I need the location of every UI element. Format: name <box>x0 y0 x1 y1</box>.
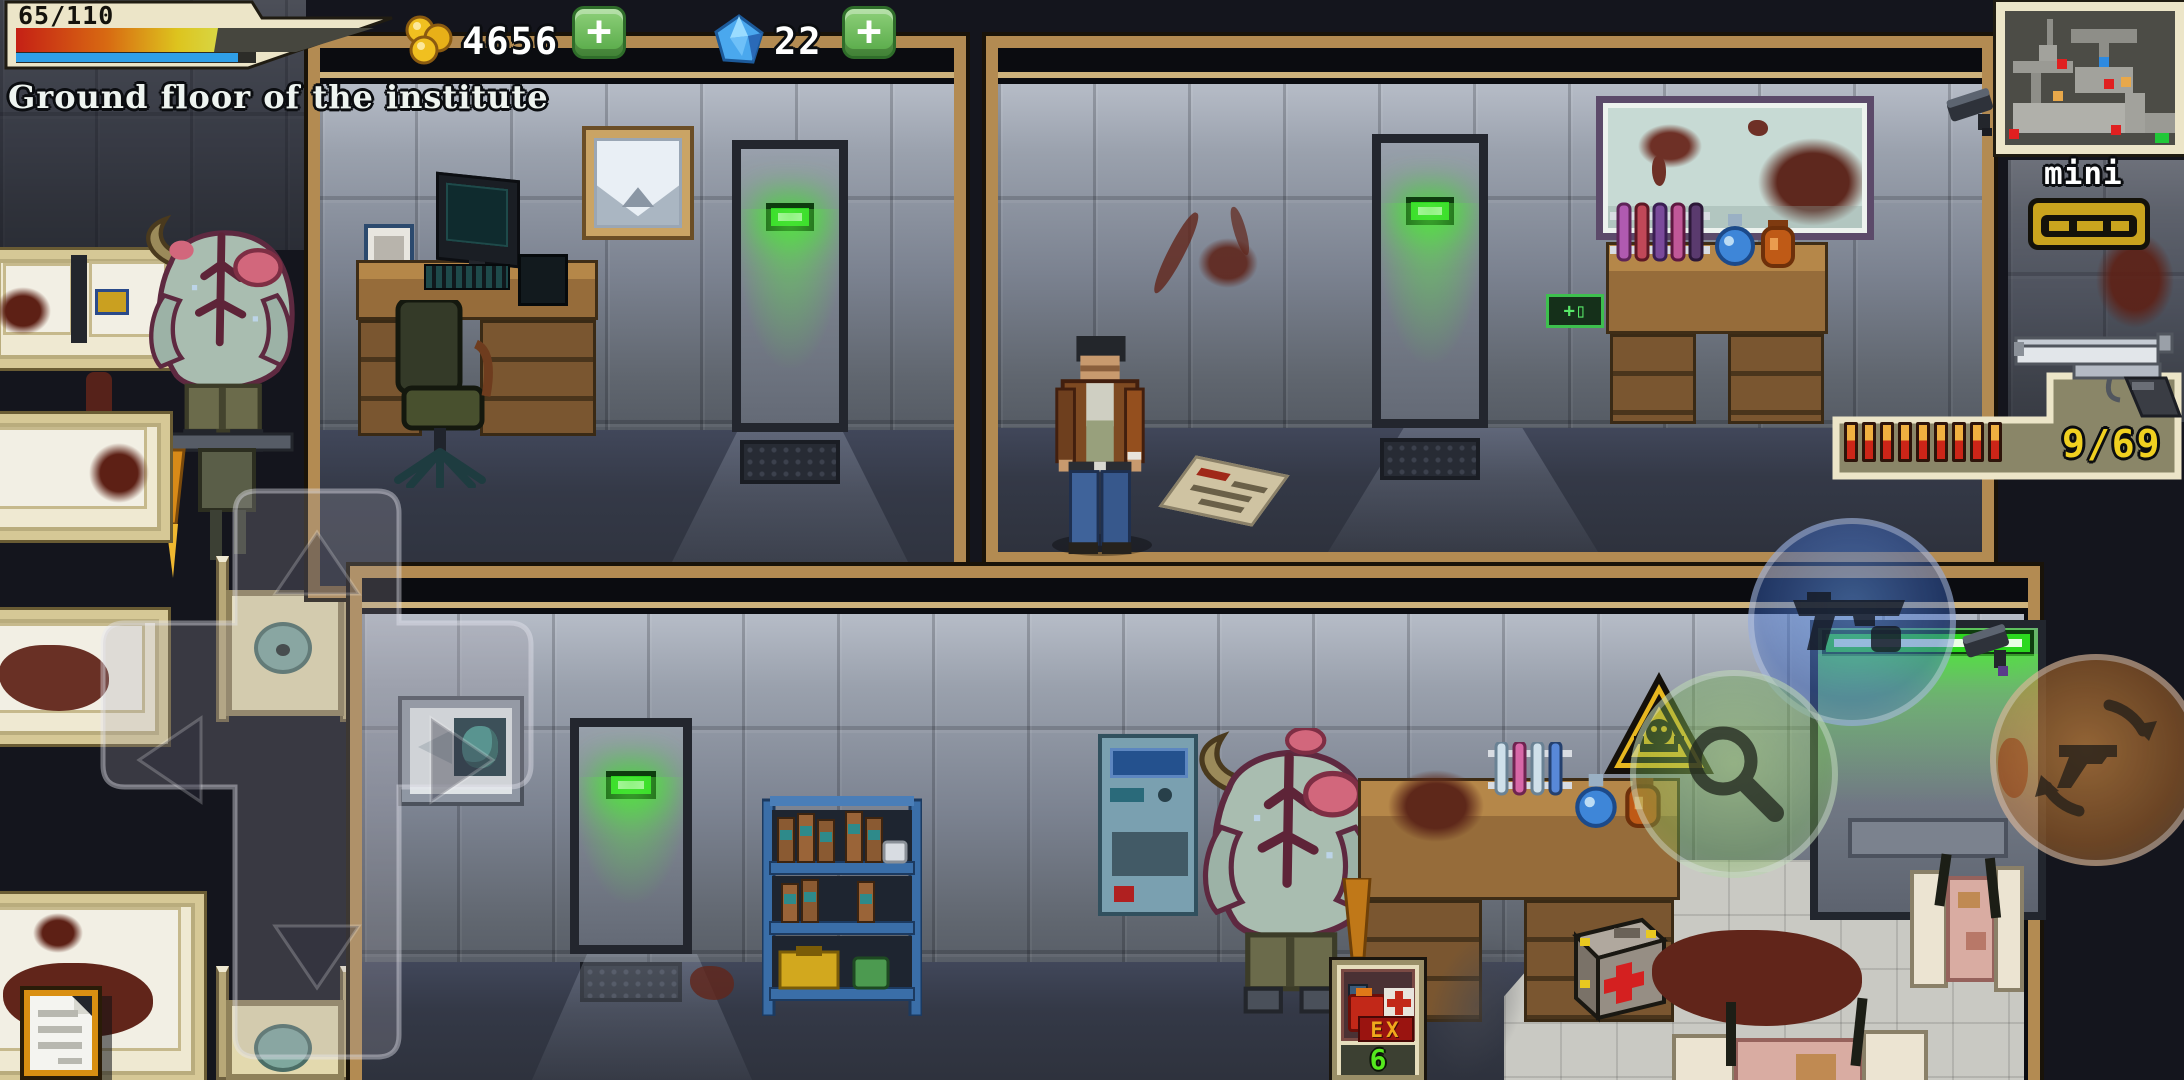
ammo-panel[interactable]: 9/69 <box>1830 318 2184 482</box>
desk-drawers <box>1610 334 1696 424</box>
minimap-room <box>2145 113 2175 133</box>
dpad-right[interactable] <box>400 623 535 788</box>
bullet-icon <box>1916 422 1930 462</box>
bullet-icon <box>1898 422 1912 462</box>
document-button[interactable] <box>20 986 102 1080</box>
minimap-dot-enemy <box>2111 125 2121 135</box>
blood-pool <box>1388 770 1484 842</box>
health-value: 65/110 <box>18 1 114 30</box>
quick-item-slot[interactable]: EX 6 <box>1332 960 1424 1080</box>
keyboard <box>424 264 510 290</box>
desk-drawers <box>1728 334 1824 424</box>
test-tube-rack <box>1488 742 1574 802</box>
window-blinds <box>582 126 694 240</box>
bullet-icon <box>1880 422 1894 462</box>
weapon-swap-icon <box>2021 683 2171 837</box>
dpad-left[interactable] <box>100 623 235 788</box>
location-label: Ground floor of the institute <box>8 78 549 116</box>
item-count-strip: 6 <box>1341 1045 1415 1075</box>
minimap-dot-enemy <box>2057 59 2067 69</box>
blood-smear <box>1138 198 1278 348</box>
computer-monitor <box>436 172 520 269</box>
minimap-dot-loot <box>2121 77 2131 87</box>
office-chair <box>380 300 500 488</box>
security-camera <box>1958 622 2020 682</box>
dpad-up[interactable] <box>235 488 400 643</box>
add-coins-button[interactable]: + <box>572 6 626 59</box>
door-green-light <box>570 718 692 954</box>
minimap-dot-exit <box>2155 133 2169 143</box>
item-tag-band: EX <box>1358 1016 1414 1042</box>
gem-value: 22 <box>774 20 823 63</box>
minimap-dot-loot <box>2053 91 2063 101</box>
floor-vent <box>740 440 840 484</box>
bullet-icon <box>1862 422 1876 462</box>
door-green-light <box>1372 134 1488 428</box>
desk-console <box>518 254 568 306</box>
magnifier-icon <box>1679 717 1789 831</box>
blue-flask <box>1714 214 1758 266</box>
player-character <box>1054 336 1146 556</box>
item-count: 6 <box>1370 1043 1387 1076</box>
wall-plaque <box>2028 198 2150 250</box>
bullet-row <box>1844 422 2014 466</box>
blood-splat <box>690 966 734 1000</box>
bullet-icon <box>1988 422 2002 462</box>
floor-vent <box>1380 438 1480 480</box>
coin-value: 4656 <box>462 20 559 63</box>
blue-flask <box>1574 774 1620 828</box>
medkit-icon: EX <box>1341 969 1415 1041</box>
test-tube-rack <box>1610 202 1714 268</box>
bullet-icon <box>1952 422 1966 462</box>
minimap[interactable] <box>1996 2 2184 154</box>
bullet-icon <box>1844 422 1858 462</box>
room-lab-top: +▯ <box>986 36 1994 564</box>
corpse-bundle <box>1910 862 2024 1002</box>
minimap-room <box>2125 93 2145 133</box>
add-gems-button[interactable]: + <box>842 6 896 59</box>
coin-icon <box>404 14 456 66</box>
bullet-icon <box>1970 422 1984 462</box>
smg-icon <box>1787 574 1917 670</box>
dpad <box>55 468 575 1080</box>
item-tag: EX <box>1370 1018 1401 1042</box>
game-viewport: +▯ <box>0 0 2184 1080</box>
keycard-panel: +▯ <box>1546 294 1604 328</box>
pistol-icon <box>2014 318 2184 418</box>
door-green-light <box>732 140 848 432</box>
corpse-bundle <box>1672 1028 1952 1080</box>
bullet-icon <box>1934 422 1948 462</box>
security-camera <box>1944 88 2004 140</box>
search-button[interactable] <box>1630 670 1838 878</box>
minimap-dot-player <box>2099 57 2109 67</box>
minimap-dot-enemy <box>2009 129 2019 139</box>
minimap-room <box>2071 29 2137 43</box>
health-panel: 65/110 <box>0 0 400 80</box>
minimap-dot-enemy <box>2104 79 2114 89</box>
bookshelf <box>762 796 922 1016</box>
gem-icon <box>712 14 766 66</box>
orange-jar <box>1760 220 1798 268</box>
ammo-value: 9/69 <box>2062 422 2162 466</box>
minimap-room <box>2031 73 2041 107</box>
dpad-down[interactable] <box>235 908 400 1078</box>
